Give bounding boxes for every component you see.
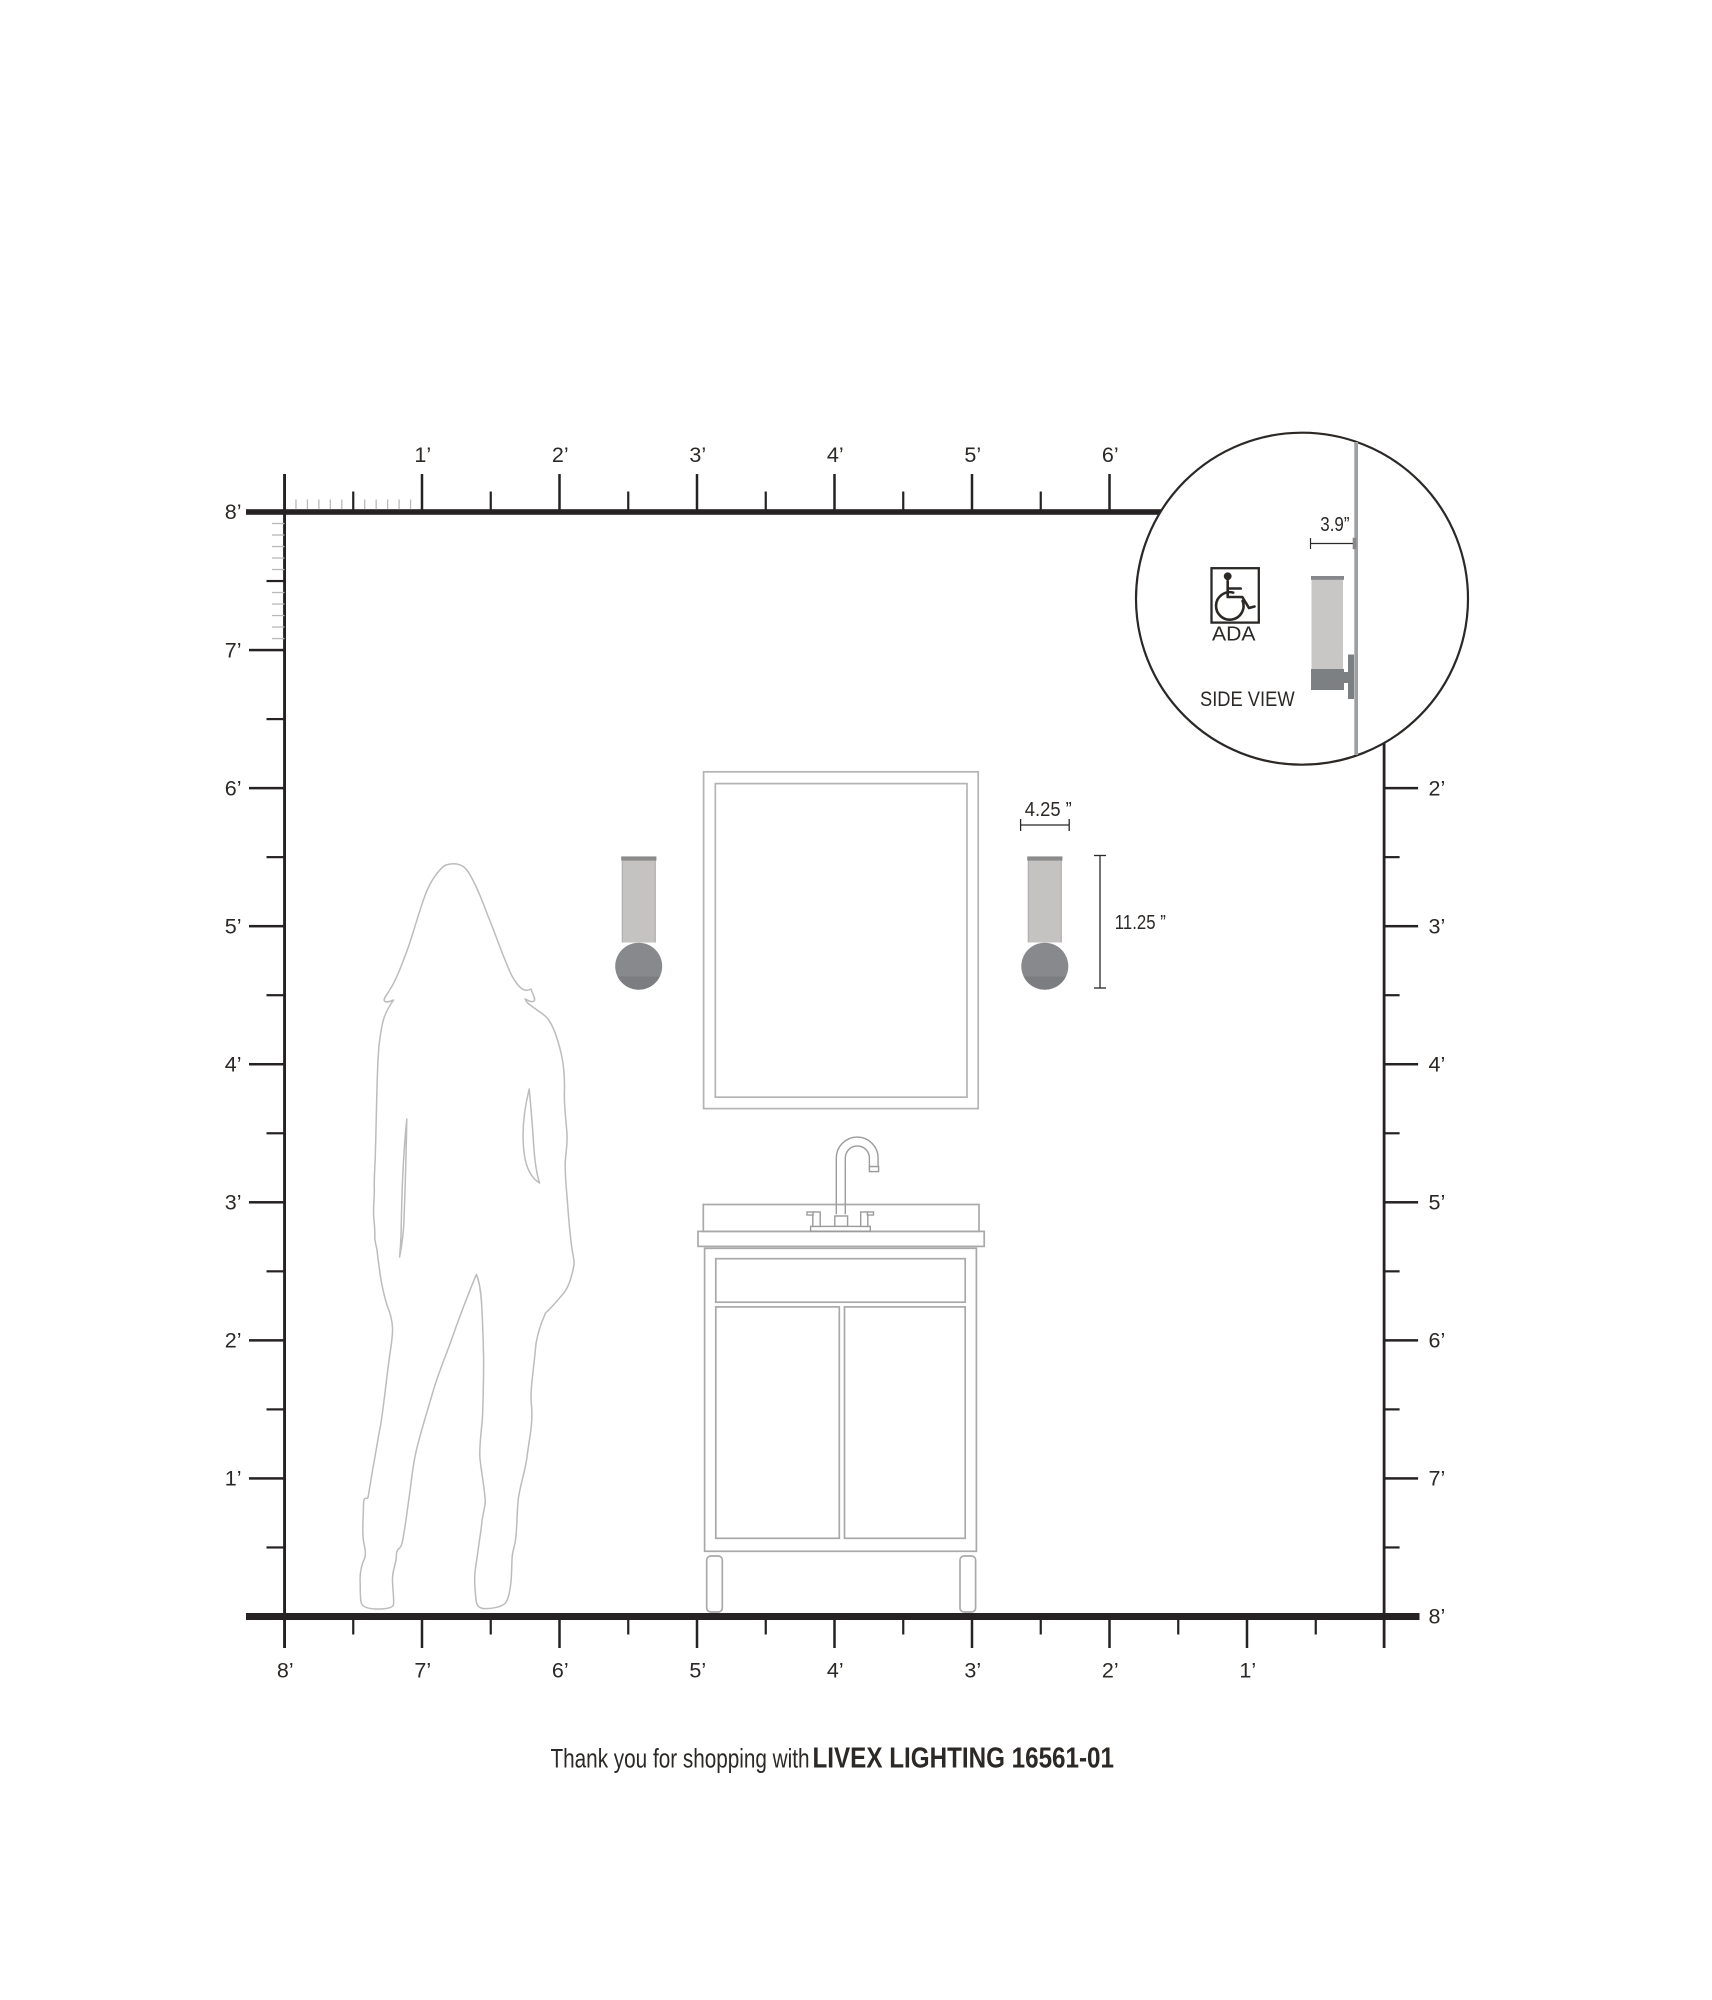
svg-text:4’: 4’ bbox=[1429, 1052, 1446, 1076]
svg-text:4’: 4’ bbox=[827, 443, 844, 467]
svg-text:11.25 ”: 11.25 ” bbox=[1115, 912, 1166, 934]
svg-text:Thank you for shopping with: Thank you for shopping with bbox=[551, 1744, 810, 1774]
svg-text:5’: 5’ bbox=[225, 914, 242, 938]
svg-text:2’: 2’ bbox=[1102, 1659, 1119, 1683]
svg-text:3’: 3’ bbox=[689, 443, 706, 467]
svg-text:2’: 2’ bbox=[1429, 776, 1446, 800]
svg-text:5’: 5’ bbox=[689, 1659, 706, 1683]
svg-text:ADA: ADA bbox=[1212, 624, 1256, 646]
svg-text:1’: 1’ bbox=[1239, 1659, 1256, 1683]
svg-text:4.25 ”: 4.25 ” bbox=[1025, 799, 1072, 821]
svg-text:5’: 5’ bbox=[1429, 1191, 1446, 1215]
svg-text:6’: 6’ bbox=[1102, 443, 1119, 467]
svg-text:8’: 8’ bbox=[225, 500, 242, 524]
svg-text:6’: 6’ bbox=[552, 1659, 569, 1683]
svg-text:2’: 2’ bbox=[225, 1329, 242, 1353]
svg-text:SIDE VIEW: SIDE VIEW bbox=[1200, 687, 1295, 711]
svg-text:4’: 4’ bbox=[827, 1659, 844, 1683]
svg-text:8’: 8’ bbox=[277, 1659, 294, 1683]
svg-text:3’: 3’ bbox=[964, 1659, 981, 1683]
svg-text:6’: 6’ bbox=[1429, 1329, 1446, 1353]
svg-text:8’: 8’ bbox=[1429, 1605, 1446, 1629]
svg-text:5’: 5’ bbox=[964, 443, 981, 467]
svg-text:4’: 4’ bbox=[225, 1052, 242, 1076]
svg-text:1’: 1’ bbox=[225, 1467, 242, 1491]
svg-text:1’: 1’ bbox=[414, 443, 431, 467]
svg-text:7’: 7’ bbox=[1429, 1467, 1446, 1491]
svg-text:3.9”: 3.9” bbox=[1320, 514, 1349, 536]
svg-text:3’: 3’ bbox=[225, 1191, 242, 1215]
svg-text:3’: 3’ bbox=[1429, 914, 1446, 938]
svg-text:6’: 6’ bbox=[225, 776, 242, 800]
svg-text:2’: 2’ bbox=[552, 443, 569, 467]
svg-text:LIVEX LIGHTING 16561-01: LIVEX LIGHTING 16561-01 bbox=[813, 1743, 1115, 1775]
svg-text:7’: 7’ bbox=[414, 1659, 431, 1683]
svg-text:7’: 7’ bbox=[225, 638, 242, 662]
